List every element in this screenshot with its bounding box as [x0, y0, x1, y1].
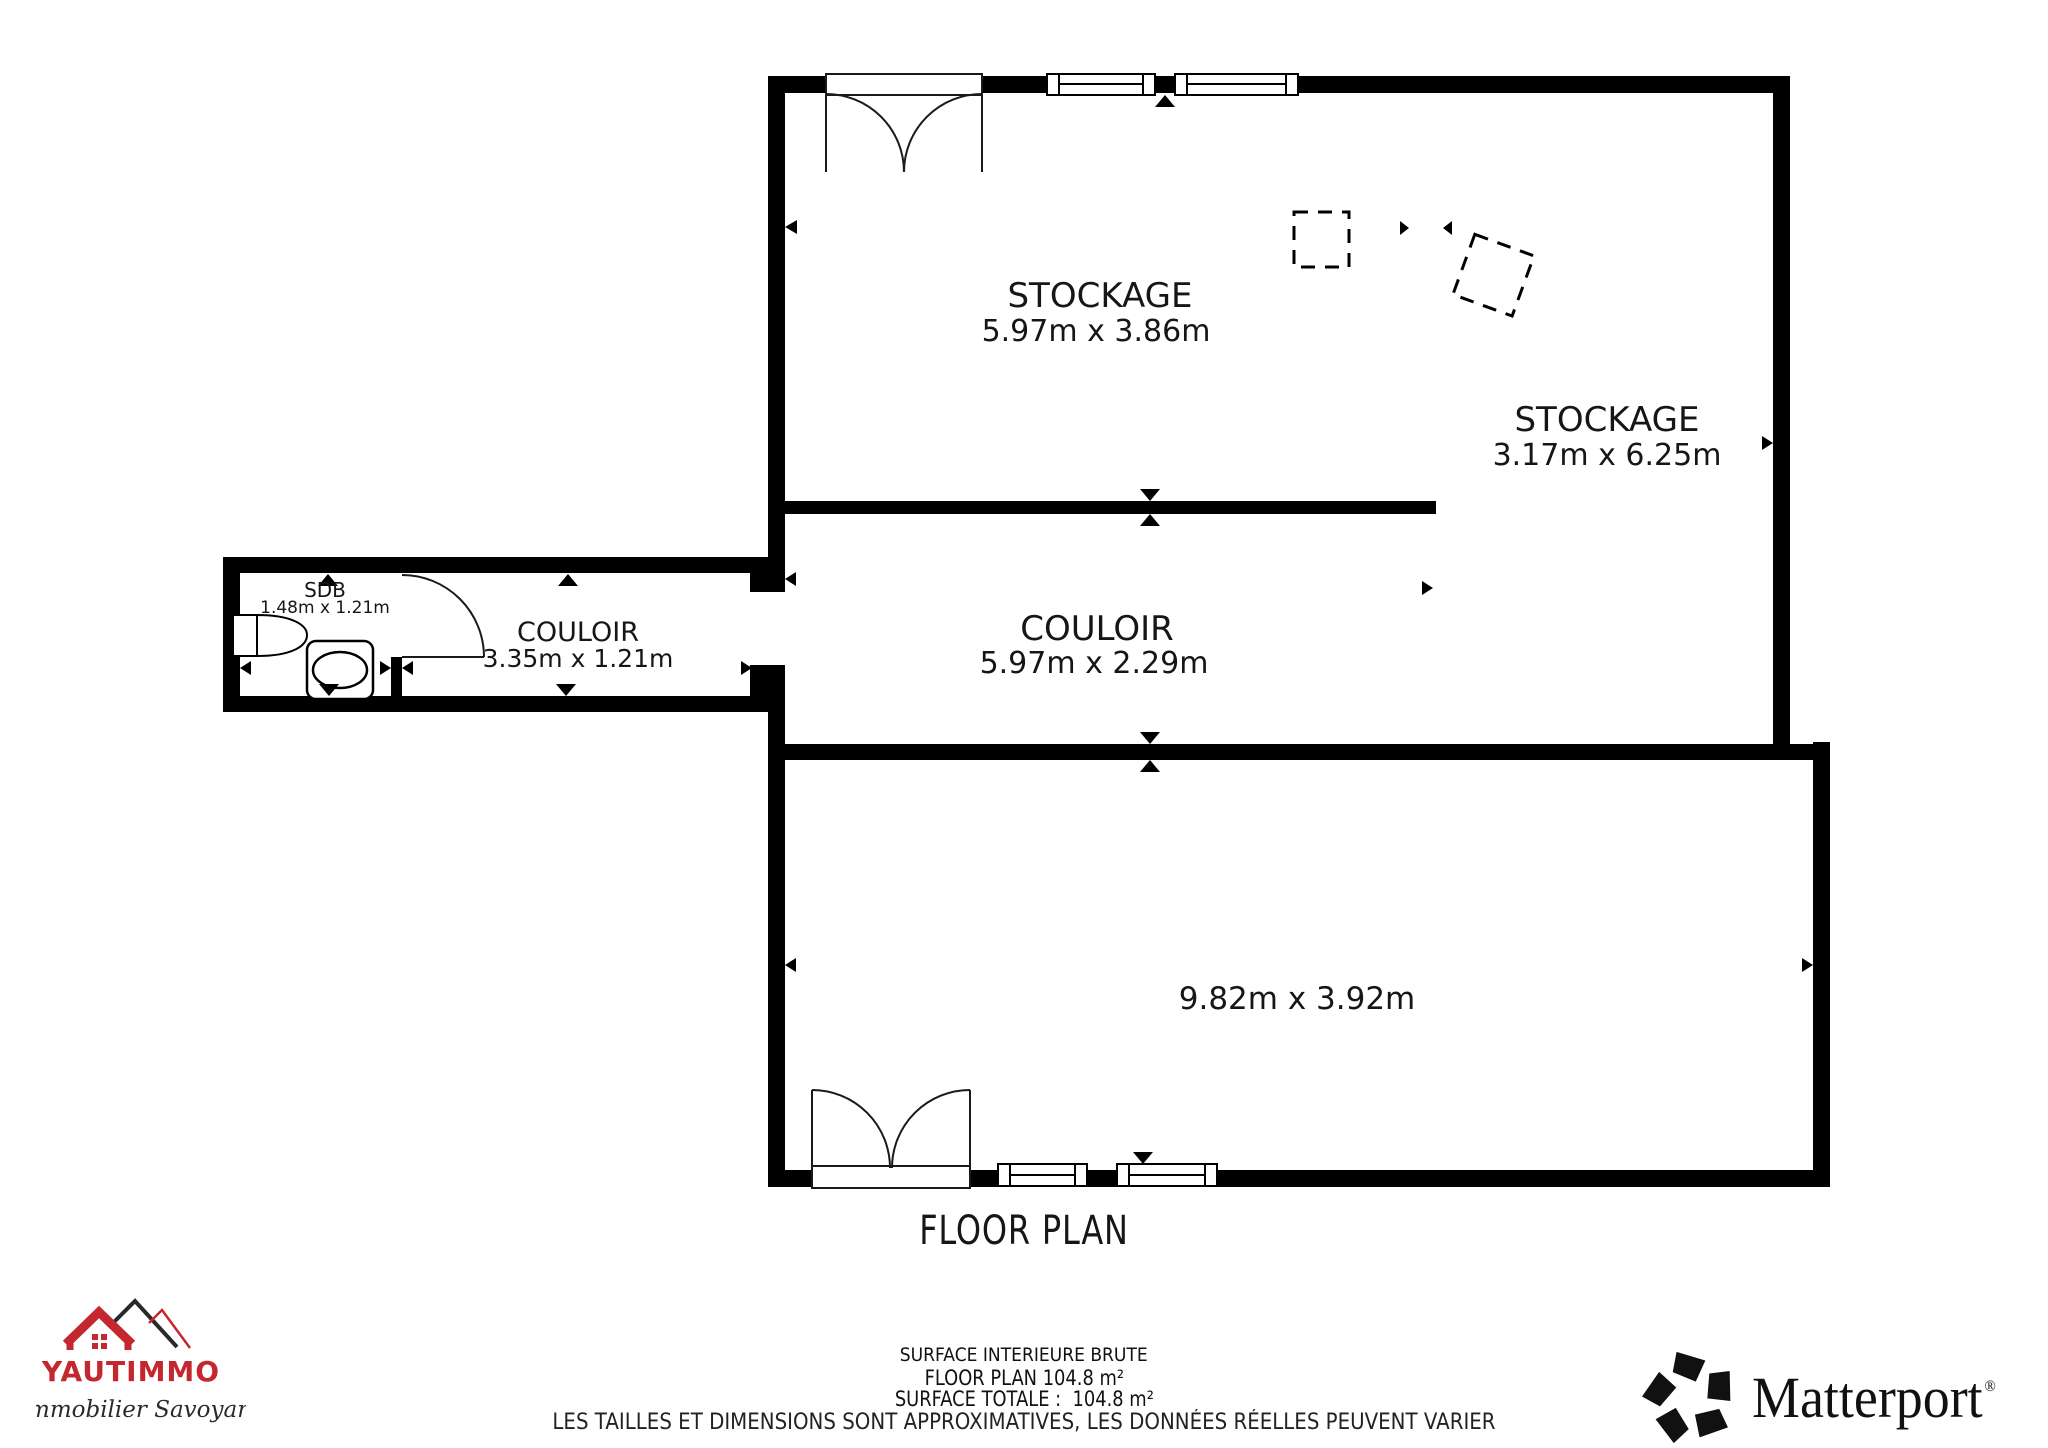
marker-left-icon: [785, 572, 796, 586]
toilet-icon: [307, 641, 373, 699]
matterport-mark-icon: [1642, 1350, 1738, 1446]
room-dims: 3.35m x 1.21m: [483, 644, 674, 673]
room-dims: 5.97m x 2.29m: [980, 646, 1209, 681]
yautimmo-mark-icon: YAUTIMMO L'immobilier Savoyard: [36, 1286, 246, 1436]
marker-right-icon: [380, 661, 391, 675]
matterport-wordmark: Matterport®: [1752, 1369, 1996, 1427]
room-dims: 9.82m x 3.92m: [1179, 981, 1416, 1017]
room-name: STOCKAGE: [1007, 276, 1192, 316]
yautimmo-wordmark: YAUTIMMO: [41, 1355, 220, 1388]
dashed-square-rotated-icon: [1453, 234, 1534, 316]
matterport-logo: Matterport®: [1642, 1350, 2014, 1446]
marker-up-icon: [1140, 514, 1160, 526]
marker-left-icon: [785, 220, 797, 234]
dashed-square-icon: [1294, 212, 1349, 267]
room-name: STOCKAGE: [1514, 400, 1699, 440]
fixtures: [233, 615, 373, 699]
matterport-wordmark-text: Matterport: [1752, 1365, 1983, 1430]
footer-disclaimer-text: LES TAILLES ET DIMENSIONS SONT APPROXIMA…: [552, 1410, 1495, 1435]
double-door-icon: [812, 1090, 970, 1188]
yautimmo-tagline: L'immobilier Savoyard: [36, 1397, 246, 1423]
double-door-icon: [826, 74, 982, 172]
sink-icon: [233, 615, 307, 656]
footer-surface-totale-text: SURFACE TOTALE : 104.8 m²: [894, 1387, 1153, 1411]
marker-left-icon: [402, 661, 413, 675]
plan-title: FLOOR PLAN: [0, 1208, 2048, 1254]
marker-down-icon: [1140, 489, 1160, 501]
window-icon: [1117, 1164, 1217, 1186]
floor-plan-page: STOCKAGE 5.97m x 3.86m STOCKAGE 3.17m x …: [0, 0, 2048, 1448]
plan-title-text: FLOOR PLAN: [919, 1208, 1129, 1254]
room-name: COULOIR: [1020, 609, 1174, 649]
marker-down-icon: [556, 684, 576, 696]
marker-up-icon: [1140, 760, 1160, 772]
marker-right-icon: [1762, 436, 1773, 450]
registered-mark: ®: [1985, 1378, 1996, 1395]
marker-up-icon: [558, 574, 578, 586]
roof-window-icon: [92, 1334, 107, 1349]
window-icon: [1047, 74, 1155, 95]
footer-surface-brute-text: SURFACE INTERIEURE BRUTE: [900, 1344, 1148, 1366]
marker-down-icon: [1140, 732, 1160, 744]
marker-left-icon: [785, 958, 796, 972]
room-dims: 1.48m x 1.21m: [260, 598, 390, 618]
doors: [402, 74, 982, 1188]
marker-down-icon: [1133, 1152, 1153, 1164]
window-icon: [998, 1164, 1087, 1186]
room-labels: STOCKAGE 5.97m x 3.86m STOCKAGE 3.17m x …: [260, 276, 1721, 1017]
marker-left-icon: [240, 661, 251, 675]
yautimmo-logo: YAUTIMMO L'immobilier Savoyard: [36, 1286, 246, 1440]
marker-left-icon: [1443, 221, 1452, 235]
marker-right-icon: [1802, 958, 1813, 972]
dashed-boxes: [1294, 212, 1534, 316]
swing-door-icon: [402, 575, 484, 657]
room-dims: 3.17m x 6.25m: [1493, 438, 1722, 473]
marker-right-icon: [1400, 221, 1409, 235]
marker-up-icon: [1155, 95, 1175, 107]
window-icon: [1175, 74, 1298, 95]
marker-right-icon: [1422, 581, 1433, 595]
room-dims: 5.97m x 3.86m: [982, 314, 1211, 349]
